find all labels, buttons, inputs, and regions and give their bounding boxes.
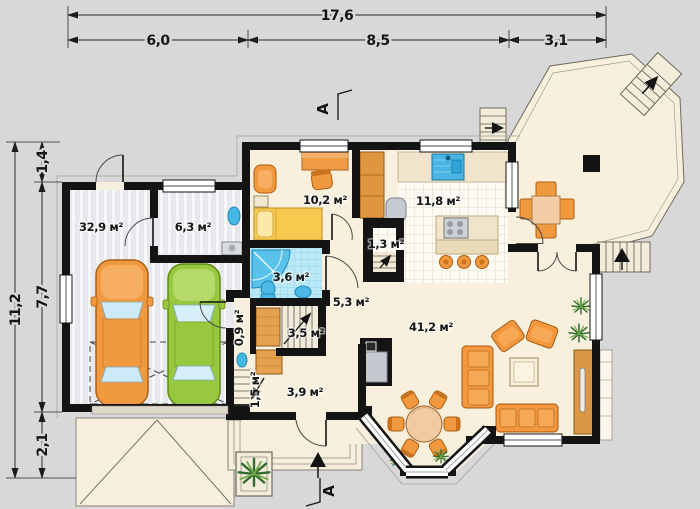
terrace-column bbox=[583, 155, 600, 172]
car-green bbox=[163, 264, 225, 406]
room-label-closet: 0,9 м² bbox=[232, 309, 246, 346]
room-label-kitchen: 11,8 м² bbox=[416, 194, 460, 208]
bed bbox=[254, 208, 322, 240]
room-label-hall: 5,3 м² bbox=[333, 295, 370, 309]
window-living-bottom bbox=[504, 434, 562, 446]
room-label-living: 41,2 м² bbox=[409, 320, 453, 334]
dim-height-1: 1,4 bbox=[35, 150, 51, 174]
dim-width-1: 6,0 bbox=[146, 33, 170, 49]
wardrobe-upper bbox=[256, 308, 280, 346]
room-label-bedroom: 10,2 м² bbox=[303, 193, 347, 207]
dim-width-2: 8,5 bbox=[366, 33, 389, 49]
dim-height-3: 2,1 bbox=[35, 433, 51, 456]
dim-total-width: 17,6 bbox=[321, 8, 354, 24]
tall-cabinet bbox=[360, 152, 384, 218]
patio-door-panel bbox=[574, 350, 594, 434]
sofa-vertical bbox=[462, 346, 493, 408]
driveway bbox=[76, 418, 234, 506]
utility-sink bbox=[228, 207, 240, 225]
floor-plan-drawing: 32,9 м² 6,3 м² 10,2 м² 11,8 м² 1,3 м² 3,… bbox=[0, 0, 700, 509]
dim-height-2: 7,7 bbox=[35, 285, 51, 308]
porch-planter bbox=[236, 452, 272, 496]
window-living-right bbox=[590, 274, 602, 340]
corridor-sink bbox=[237, 353, 247, 367]
room-label-pantry: 1,3 м² bbox=[368, 237, 405, 251]
car-orange bbox=[91, 260, 153, 406]
terrace-steps-lower bbox=[598, 242, 650, 272]
window-bedroom bbox=[300, 140, 348, 152]
exterior-sill bbox=[600, 350, 612, 440]
room-label-stairs: 3,5 м² bbox=[288, 326, 325, 340]
dim-width-3: 3,1 bbox=[544, 33, 567, 49]
floor-plan-page: 32,9 м² 6,3 м² 10,2 м² 11,8 м² 1,3 м² 3,… bbox=[0, 0, 700, 509]
kitchen-sink bbox=[432, 154, 464, 180]
room-label-utility: 6,3 м² bbox=[175, 220, 212, 234]
room-label-garage: 32,9 м² bbox=[79, 220, 123, 234]
washbasin bbox=[295, 286, 311, 298]
nightstand bbox=[254, 196, 268, 207]
window-kitchen-top bbox=[420, 140, 472, 152]
room-label-entry: 3,9 м² bbox=[287, 385, 324, 399]
bar-counter bbox=[436, 240, 498, 254]
room-label-bathroom: 3,6 м² bbox=[273, 270, 310, 284]
room-label-lower-stairs: 1,5 м² bbox=[248, 371, 262, 408]
stove bbox=[444, 218, 468, 238]
window-garage-left bbox=[60, 275, 72, 323]
coffee-table bbox=[510, 358, 538, 386]
bar-stools bbox=[440, 256, 489, 269]
window-kitchen-right bbox=[506, 162, 518, 208]
sofa-horizontal bbox=[496, 404, 558, 432]
section-label-top: A bbox=[314, 103, 332, 115]
dim-total-height: 11,2 bbox=[8, 294, 24, 327]
section-label-bottom: A bbox=[320, 485, 338, 497]
desk-chair bbox=[311, 169, 333, 191]
window-utility bbox=[163, 180, 215, 192]
garage-door-threshold bbox=[92, 406, 228, 414]
